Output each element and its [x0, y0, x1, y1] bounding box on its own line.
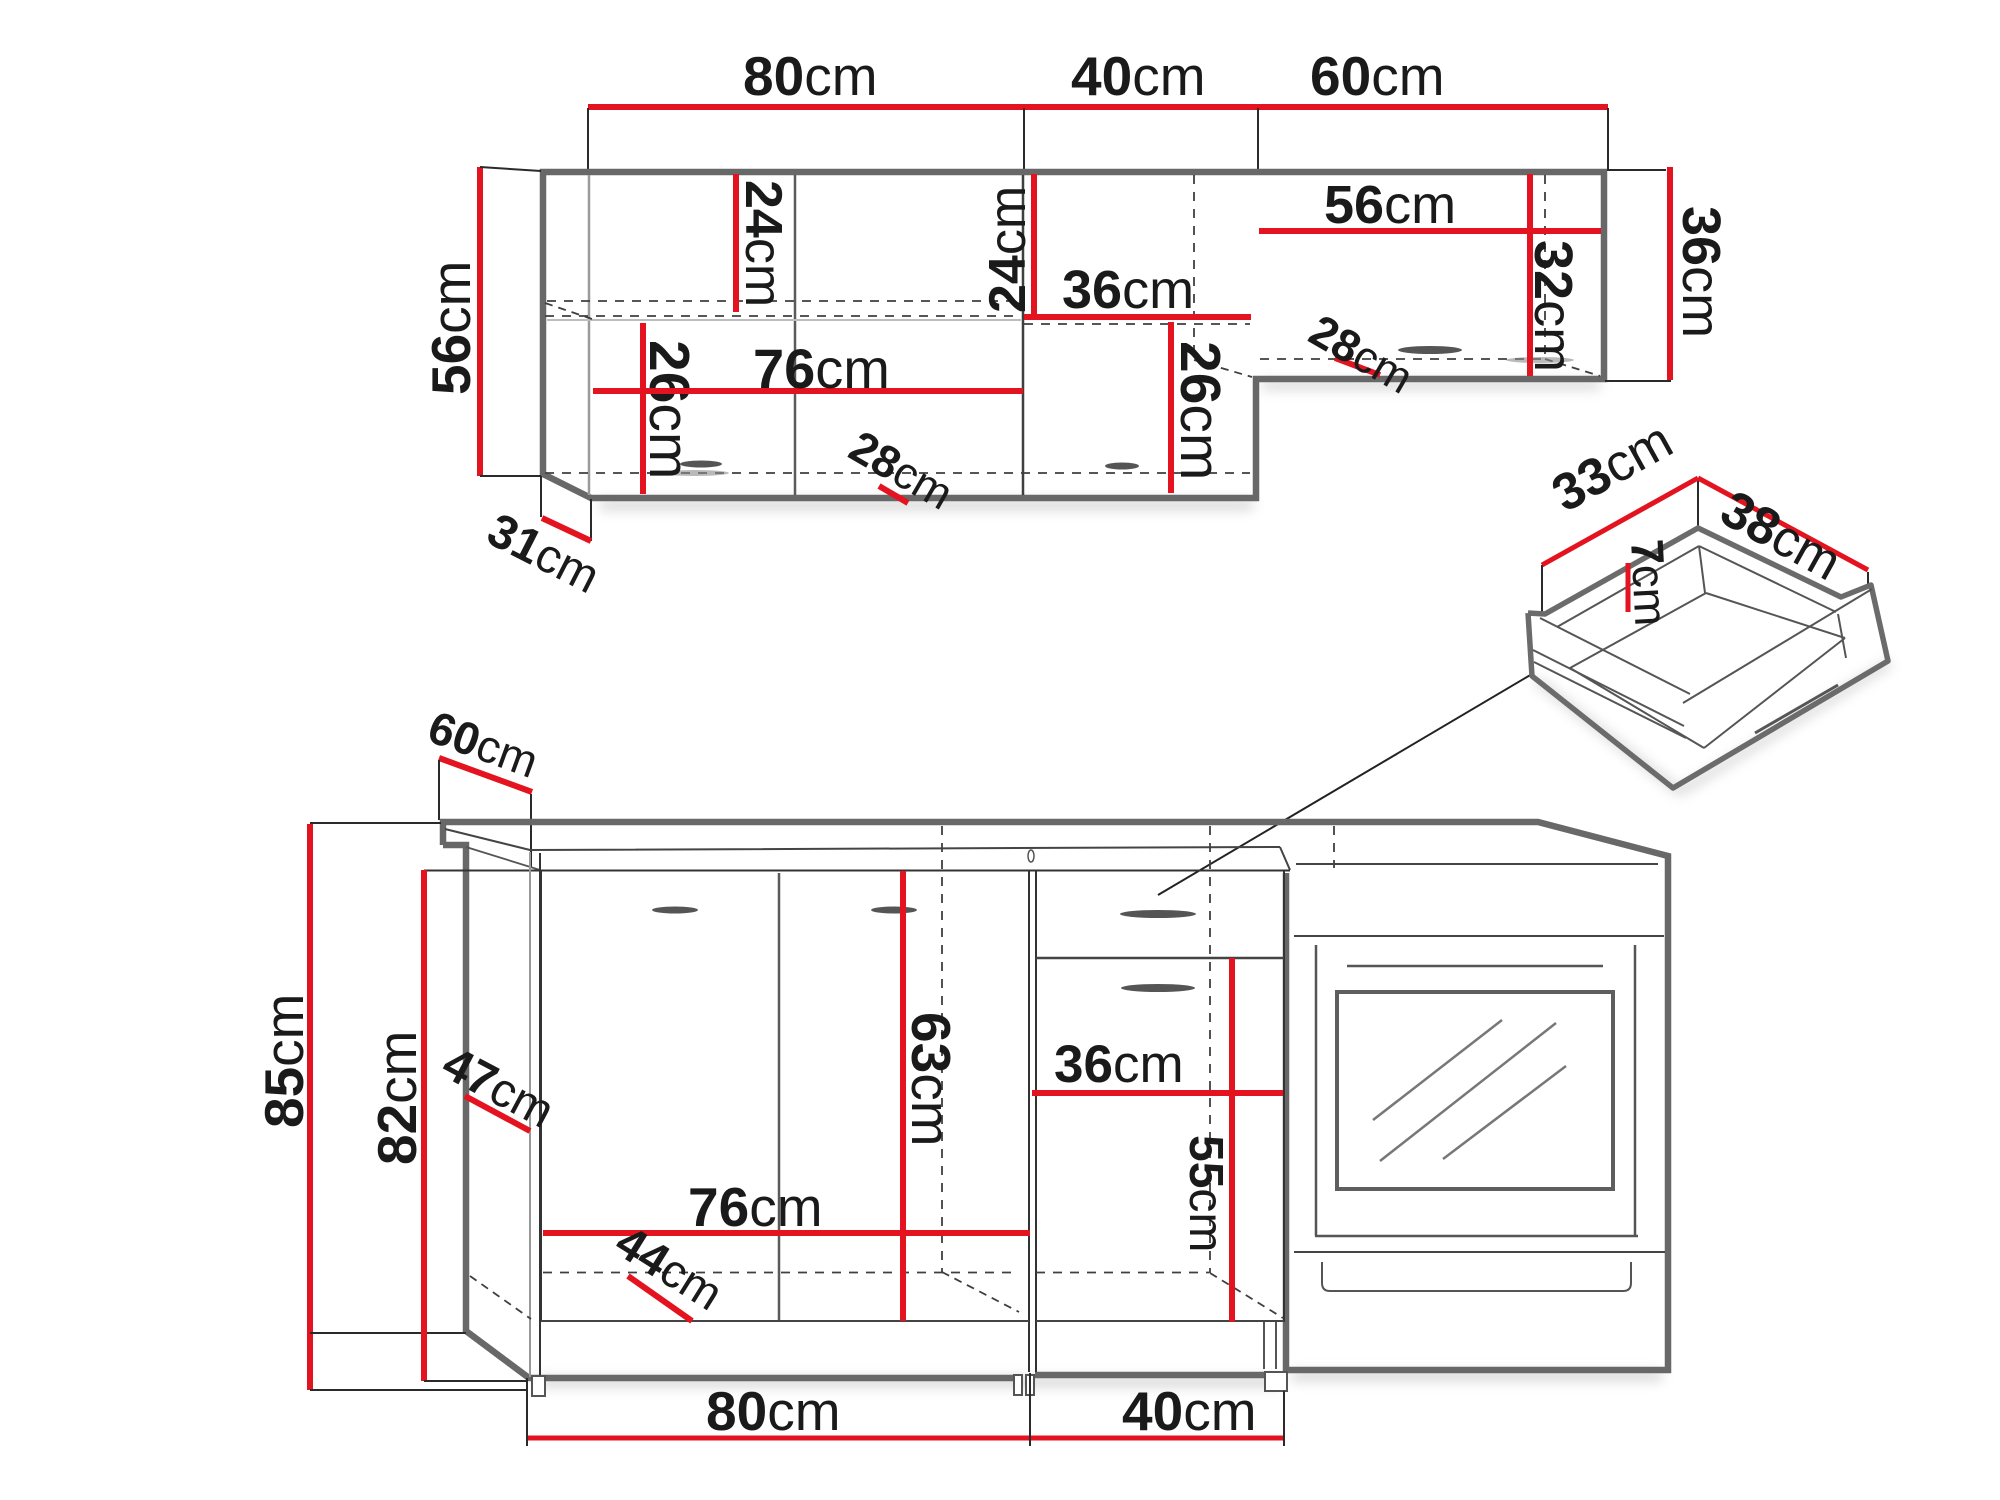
svg-text:7cm: 7cm [1621, 538, 1677, 628]
svg-text:24cm: 24cm [979, 186, 1037, 313]
svg-text:36cm: 36cm [1054, 1035, 1184, 1094]
svg-text:56cm: 56cm [420, 260, 482, 395]
svg-text:26cm: 26cm [1168, 341, 1232, 480]
svg-text:36cm: 36cm [1671, 206, 1731, 338]
svg-text:40cm: 40cm [1122, 1380, 1257, 1442]
svg-text:24cm: 24cm [734, 180, 792, 307]
svg-text:60cm: 60cm [1310, 45, 1445, 107]
svg-text:63cm: 63cm [900, 1012, 962, 1147]
svg-text:40cm: 40cm [1071, 45, 1206, 107]
svg-text:55cm: 55cm [1179, 1135, 1232, 1252]
svg-text:32cm: 32cm [1523, 240, 1583, 372]
svg-text:36cm: 36cm [1062, 260, 1194, 320]
svg-text:80cm: 80cm [743, 45, 878, 107]
svg-text:26cm: 26cm [637, 340, 701, 479]
svg-text:76cm: 76cm [753, 337, 890, 400]
svg-text:56cm: 56cm [1324, 175, 1456, 235]
svg-text:76cm: 76cm [688, 1176, 823, 1238]
svg-text:85cm: 85cm [253, 993, 315, 1128]
svg-text:80cm: 80cm [706, 1380, 841, 1442]
svg-text:82cm: 82cm [366, 1030, 428, 1165]
